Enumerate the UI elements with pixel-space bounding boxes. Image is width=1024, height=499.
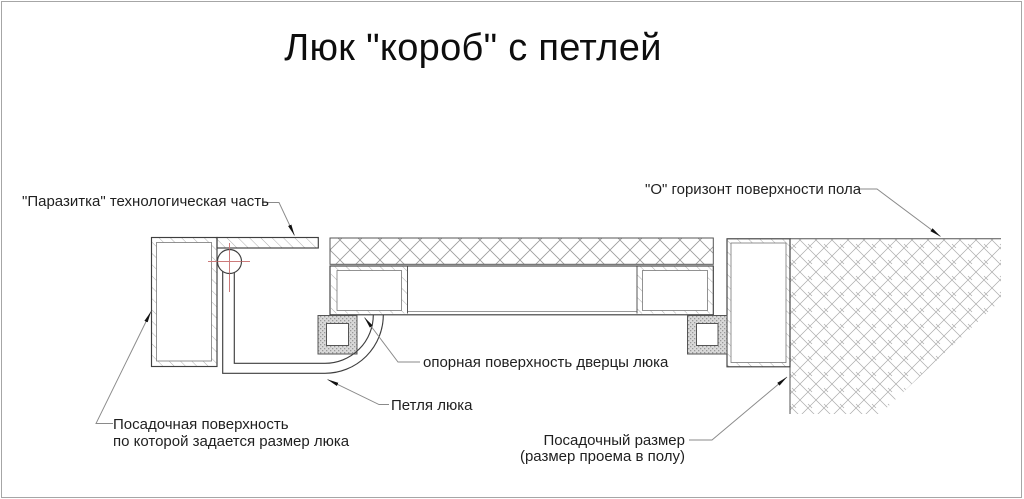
label-seating-size: Посадочный размер (размер проема в полу) — [495, 433, 685, 465]
right-seat-block — [688, 316, 728, 355]
leader-posadochny — [689, 377, 787, 440]
technological-flange — [217, 238, 318, 249]
leader-horizon — [857, 189, 941, 237]
door-body — [330, 266, 713, 315]
left-frame-profile — [152, 238, 218, 367]
label-seating-size-line2: (размер проема в полу) — [495, 449, 685, 465]
drawing-canvas: Люк "короб" с петлей — [0, 0, 1024, 499]
label-technological-part: "Паразитка" технологическая часть — [22, 194, 269, 210]
label-hinge: Петля люка — [391, 398, 472, 414]
label-seating-size-line1: Посадочный размер — [495, 433, 685, 449]
label-seating-surface-line2: по которой задается размер люка — [113, 434, 349, 451]
label-door-bearing-surface: опорная поверхность дверцы люка — [423, 355, 668, 371]
leader-petlya — [328, 380, 390, 405]
label-floor-horizon: "О" горизонт поверхности пола — [645, 182, 861, 198]
floor-slab — [790, 239, 1001, 414]
door-top-layer — [330, 238, 713, 264]
label-seating-surface-line1: Посадочная поверхность — [113, 417, 349, 434]
label-seating-surface: Посадочная поверхность по которой задает… — [113, 417, 349, 450]
left-seat-block — [318, 316, 357, 355]
leader-posadochnaya — [96, 312, 151, 424]
right-frame-profile — [727, 239, 790, 367]
